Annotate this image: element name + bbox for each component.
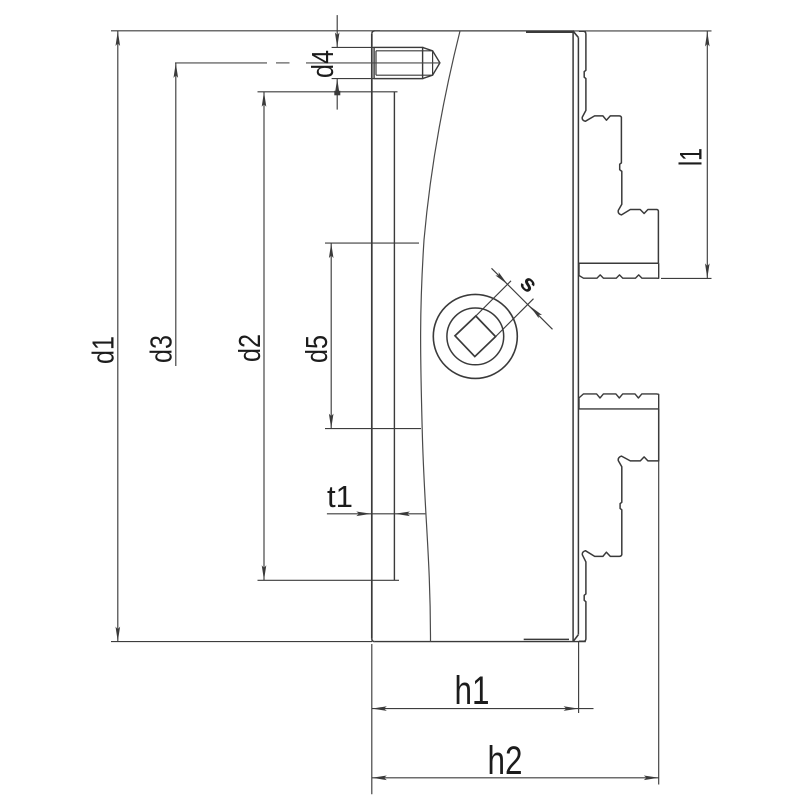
svg-text:d3: d3 bbox=[144, 335, 179, 363]
svg-text:d5: d5 bbox=[299, 335, 334, 363]
svg-text:d4: d4 bbox=[305, 50, 340, 78]
svg-text:d1: d1 bbox=[86, 336, 121, 364]
svg-text:t1: t1 bbox=[327, 479, 353, 514]
svg-text:h2: h2 bbox=[488, 739, 523, 783]
svg-text:h1: h1 bbox=[455, 669, 490, 713]
svg-text:l1: l1 bbox=[673, 148, 709, 166]
svg-text:d2: d2 bbox=[232, 334, 267, 362]
